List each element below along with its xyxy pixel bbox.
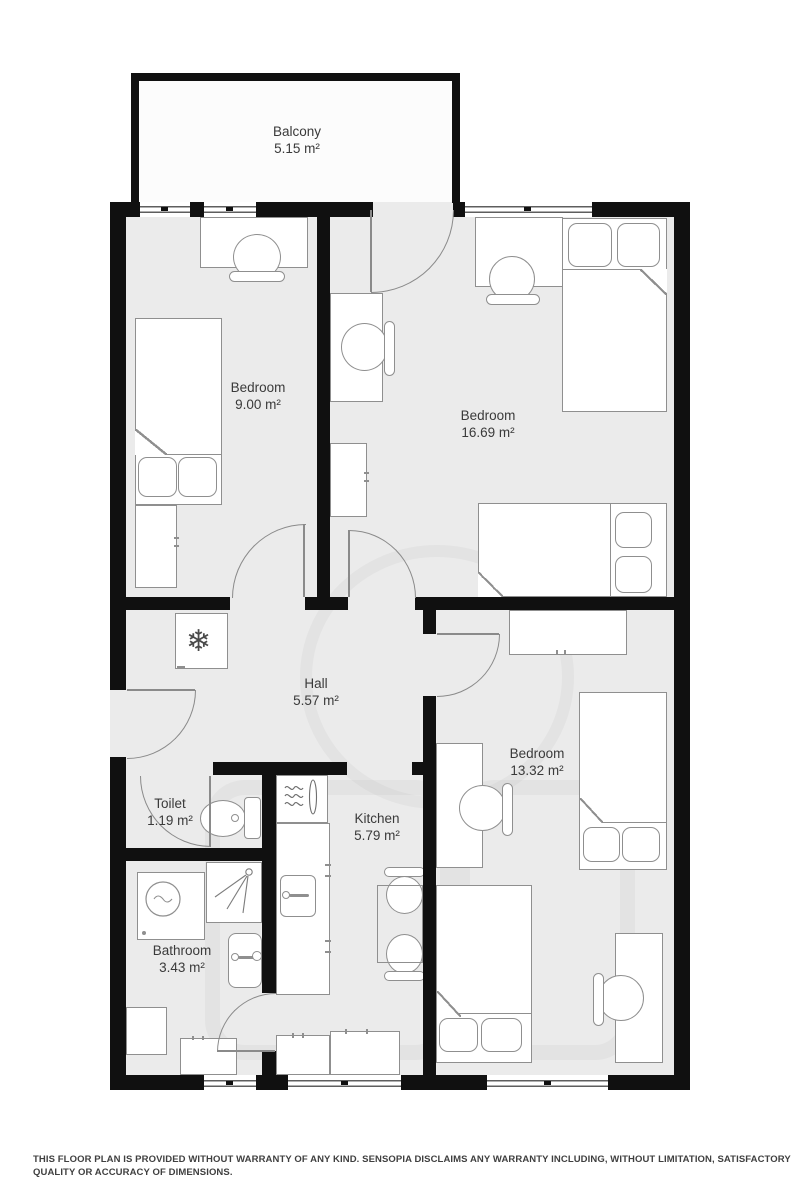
room-area: 13.32 m² — [510, 762, 565, 779]
room-label-bathroom: Bathroom 3.43 m² — [153, 942, 212, 976]
wardrobe-handle — [364, 480, 369, 482]
bedroom16-bed-fold — [640, 269, 667, 295]
room-label-bedroom13: Bedroom 13.32 m² — [510, 745, 565, 779]
toilet-button — [231, 814, 239, 822]
cabinet-handle — [345, 1029, 347, 1034]
disclaimer-text: THIS FLOOR PLAN IS PROVIDED WITHOUT WARR… — [33, 1153, 791, 1179]
bedroom9-bed-fold — [135, 429, 167, 455]
room-name: Balcony — [273, 123, 321, 140]
wall-bathroom-kitchen — [262, 1051, 276, 1075]
cabinet-handle — [325, 940, 331, 942]
bedroom13-pillow — [583, 827, 620, 862]
room-label-balcony: Balcony 5.15 m² — [273, 123, 321, 157]
bedroom9-wardrobe — [135, 505, 177, 588]
washing-machine — [137, 872, 205, 940]
wall-left-upper — [110, 202, 126, 690]
wall-hall-bed13 — [423, 696, 436, 762]
stove-hob-icon — [277, 776, 327, 822]
bedroom13-chair-bottom-back — [593, 973, 604, 1026]
floor-plan: ❄ — [0, 0, 800, 1200]
bathroom-cabinet-left — [126, 1007, 167, 1055]
room-name: Bedroom — [510, 745, 565, 762]
bedroom9-chair-back — [229, 271, 285, 282]
room-name: Bedroom — [461, 407, 516, 424]
shower-spray-icon — [207, 863, 261, 922]
balcony-wall-left — [131, 73, 139, 203]
cabinet-handle — [325, 875, 331, 877]
window-tick — [161, 207, 168, 211]
kitchen-stove — [276, 775, 328, 823]
washer-drum-icon — [138, 873, 204, 939]
bedroom16-wardrobe — [330, 443, 367, 517]
room-area: 3.43 m² — [153, 959, 212, 976]
wall-bed9-bed16 — [317, 217, 330, 610]
bedroom13-chair-bottom — [598, 975, 644, 1021]
wall-top — [592, 202, 690, 217]
threshold-entrance — [110, 690, 126, 757]
cabinet-handle — [325, 951, 331, 953]
bedroom13-wardrobe — [509, 610, 627, 655]
wall-top — [190, 202, 204, 217]
bathroom-faucet-knob — [252, 951, 262, 961]
bedroom16-pillow — [615, 556, 652, 593]
kitchen-counter-bottom-left — [276, 1035, 330, 1075]
window-tick — [544, 1081, 551, 1085]
wall-hall-kitchen — [412, 762, 436, 775]
wardrobe-handle — [174, 537, 179, 539]
wall-kitchen-bed13 — [423, 775, 436, 1075]
fridge-hinge — [177, 666, 185, 668]
room-name: Bathroom — [153, 942, 212, 959]
bedroom16-pillow — [568, 223, 612, 267]
wall-top — [256, 202, 373, 217]
bedroom9-pillow — [178, 457, 217, 497]
cabinet-handle — [366, 1029, 368, 1034]
wardrobe-handle — [556, 650, 558, 655]
room-label-bedroom9: Bedroom 9.00 m² — [231, 379, 286, 413]
window-tick — [226, 207, 233, 211]
kitchen-chair-bottom-back — [384, 971, 425, 981]
window-tick — [226, 1081, 233, 1085]
wardrobe-handle — [564, 650, 566, 655]
kitchen-counter-bottom-right — [330, 1031, 400, 1075]
wall-bottom — [401, 1075, 487, 1090]
room-label-toilet: Toilet 1.19 m² — [147, 795, 193, 829]
wall-bed16-hall — [330, 597, 348, 610]
bedroom16-bed-bottom-fold — [478, 572, 503, 597]
kitchen-faucet-bar — [289, 894, 309, 898]
wall-bottom — [110, 1075, 204, 1090]
balcony-wall-top — [131, 73, 460, 81]
room-name: Toilet — [147, 795, 193, 812]
room-area: 16.69 m² — [461, 424, 516, 441]
room-area: 5.79 m² — [354, 827, 400, 844]
wardrobe-handle — [174, 545, 179, 547]
bedroom16-bed-line — [562, 269, 641, 270]
toilet-tank — [244, 797, 261, 839]
room-name: Kitchen — [354, 810, 400, 827]
wall-bed9-hall — [305, 597, 317, 610]
wall-left-lower — [110, 757, 126, 1090]
bedroom13-pillow — [622, 827, 660, 862]
bedroom16-pillow — [617, 223, 660, 267]
wall-bottom — [256, 1075, 288, 1090]
kitchen-table — [377, 885, 423, 963]
wall-hall-kitchen — [213, 762, 347, 775]
cabinet-handle — [325, 864, 331, 866]
room-name: Bedroom — [231, 379, 286, 396]
room-area: 5.57 m² — [293, 692, 339, 709]
bedroom16-chair-top-back — [486, 294, 540, 305]
wall-top — [453, 202, 465, 217]
cabinet-handle — [292, 1033, 294, 1038]
bedroom16-chair-left — [341, 323, 388, 371]
kitchen-chair-top-back — [384, 867, 425, 877]
balcony-wall-right — [452, 73, 460, 203]
bedroom13-bed-bottom-fold — [437, 991, 461, 1017]
room-area: 9.00 m² — [231, 396, 286, 413]
bedroom16-chair-left-back — [384, 321, 395, 376]
window-tick — [341, 1081, 348, 1085]
wall-top — [110, 202, 140, 217]
bedroom13-pillow — [439, 1018, 478, 1052]
wall-bed16-bed13 — [415, 597, 675, 610]
room-name: Hall — [293, 675, 339, 692]
bedroom13-pillow — [481, 1018, 522, 1052]
window-tick — [524, 207, 531, 211]
shower — [206, 862, 262, 923]
bedroom16-pillow — [615, 512, 652, 548]
bedroom13-chair-left — [459, 785, 506, 831]
bedroom9-pillow — [138, 457, 177, 497]
bedroom13-chair-left-back — [502, 783, 513, 836]
wall-toilet-bathroom — [126, 848, 276, 861]
wall-bottom — [608, 1075, 690, 1090]
wall-bed9-hall — [126, 597, 230, 610]
bedroom16-bed-bottom-line — [610, 503, 611, 597]
room-label-kitchen: Kitchen 5.79 m² — [354, 810, 400, 844]
wall-hall-bed13 — [423, 610, 436, 634]
wall-bathroom-kitchen — [262, 861, 276, 993]
wardrobe-handle — [364, 472, 369, 474]
room-label-hall: Hall 5.57 m² — [293, 675, 339, 709]
room-area: 1.19 m² — [147, 812, 193, 829]
cabinet-handle — [202, 1036, 204, 1040]
cabinet-handle — [192, 1036, 194, 1040]
fridge-snowflake-icon: ❄ — [186, 627, 211, 657]
wall-right — [674, 202, 690, 1090]
cabinet-handle — [302, 1033, 304, 1038]
bedroom13-bed-right-fold — [580, 798, 603, 823]
room-label-bedroom16: Bedroom 16.69 m² — [461, 407, 516, 441]
room-area: 5.15 m² — [273, 140, 321, 157]
wall-toilet-kitchen — [262, 775, 276, 848]
